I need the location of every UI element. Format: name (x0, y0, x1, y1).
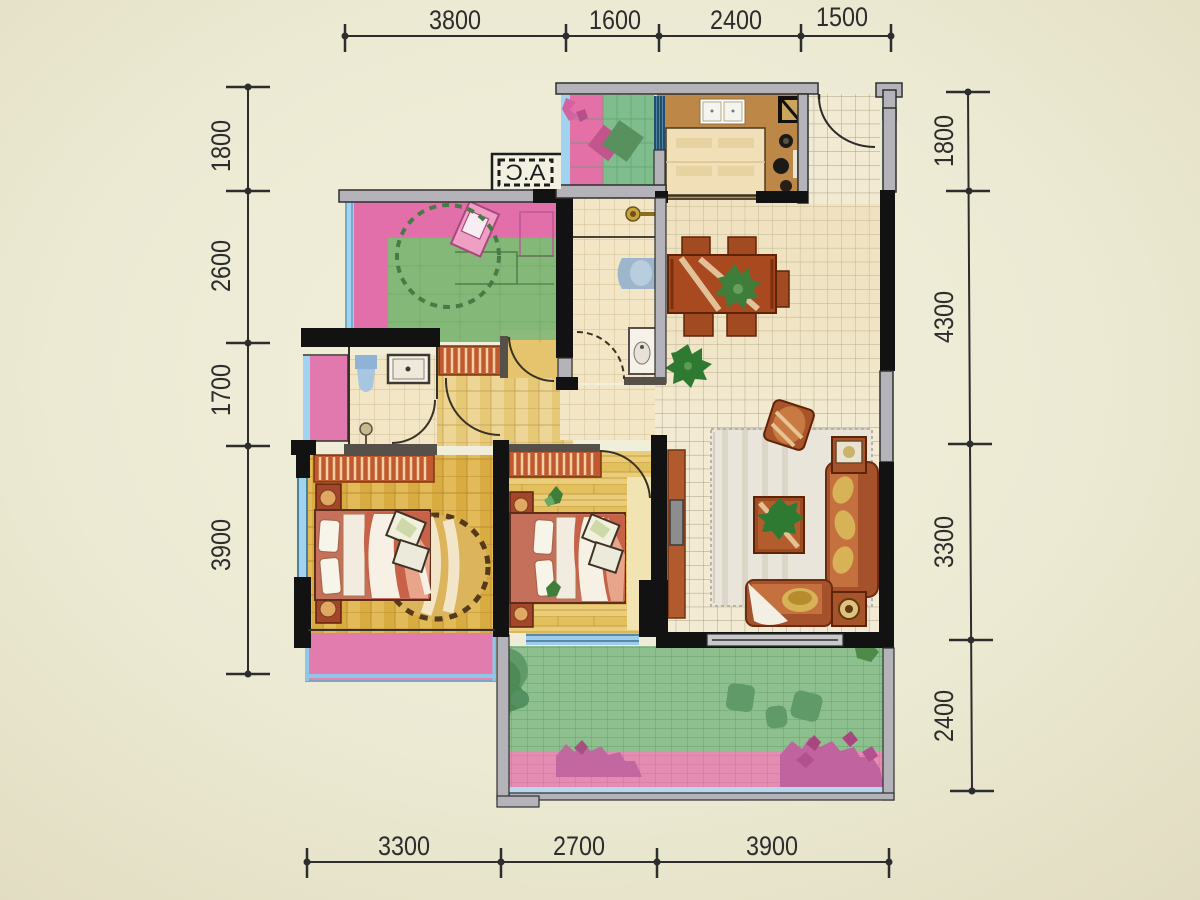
svg-text:1700: 1700 (206, 364, 236, 416)
svg-text:3800: 3800 (429, 5, 481, 35)
svg-text:3300: 3300 (378, 831, 430, 861)
svg-text:2700: 2700 (553, 831, 605, 861)
svg-text:1800: 1800 (929, 115, 959, 167)
svg-text:4300: 4300 (929, 291, 959, 343)
svg-text:1500: 1500 (816, 2, 868, 32)
svg-text:3900: 3900 (746, 831, 798, 861)
svg-text:2600: 2600 (206, 240, 236, 292)
svg-text:A.C: A.C (505, 160, 545, 185)
svg-text:2400: 2400 (929, 690, 959, 742)
svg-text:1800: 1800 (206, 120, 236, 172)
svg-text:3300: 3300 (929, 516, 959, 568)
svg-text:1600: 1600 (589, 5, 641, 35)
svg-text:3900: 3900 (206, 519, 236, 571)
svg-text:2400: 2400 (710, 5, 762, 35)
